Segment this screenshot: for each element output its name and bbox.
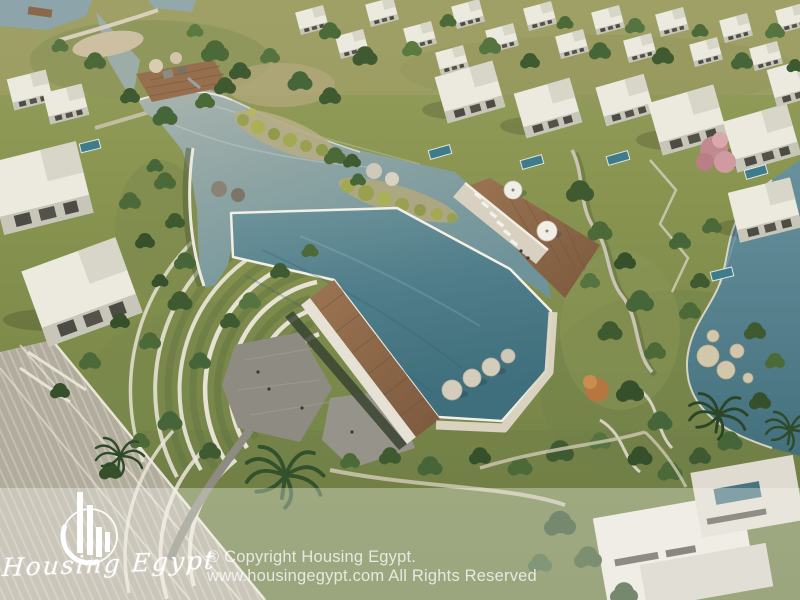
- copyright-line-1: © Copyright Housing Egypt.: [207, 548, 537, 567]
- watermark-bar: Housing Egypt © Copyright Housing Egypt.…: [0, 488, 800, 600]
- copyright-line-2: www.housingegypt.com All Rights Reserved: [207, 567, 537, 586]
- aerial-render-image: Housing Egypt © Copyright Housing Egypt.…: [0, 0, 800, 600]
- brand-logo: Housing Egypt: [0, 488, 180, 600]
- copyright-text: © Copyright Housing Egypt. www.housingeg…: [207, 548, 537, 586]
- brand-name-script: Housing Egypt: [1, 547, 179, 582]
